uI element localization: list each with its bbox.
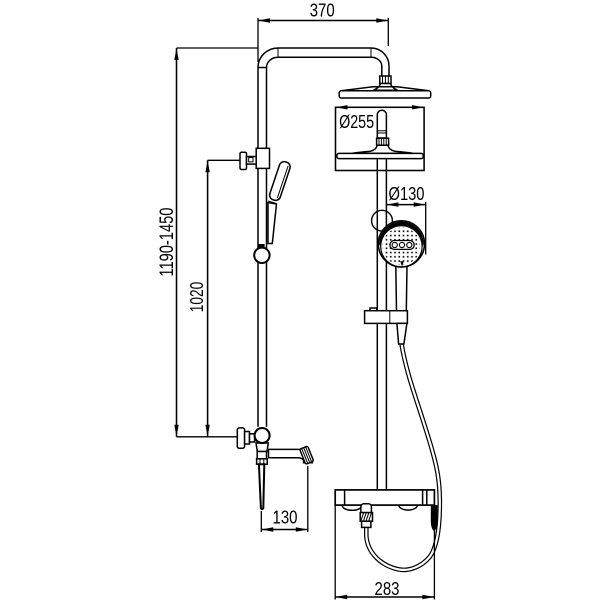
svg-text:1020: 1020 [186, 282, 207, 313]
svg-text:Ø255: Ø255 [339, 112, 374, 132]
svg-text:283: 283 [375, 578, 400, 599]
svg-text:Ø130: Ø130 [389, 184, 425, 204]
svg-text:370: 370 [310, 0, 335, 20]
svg-text:130: 130 [273, 506, 298, 527]
svg-text:1190-1450: 1190-1450 [157, 208, 178, 277]
